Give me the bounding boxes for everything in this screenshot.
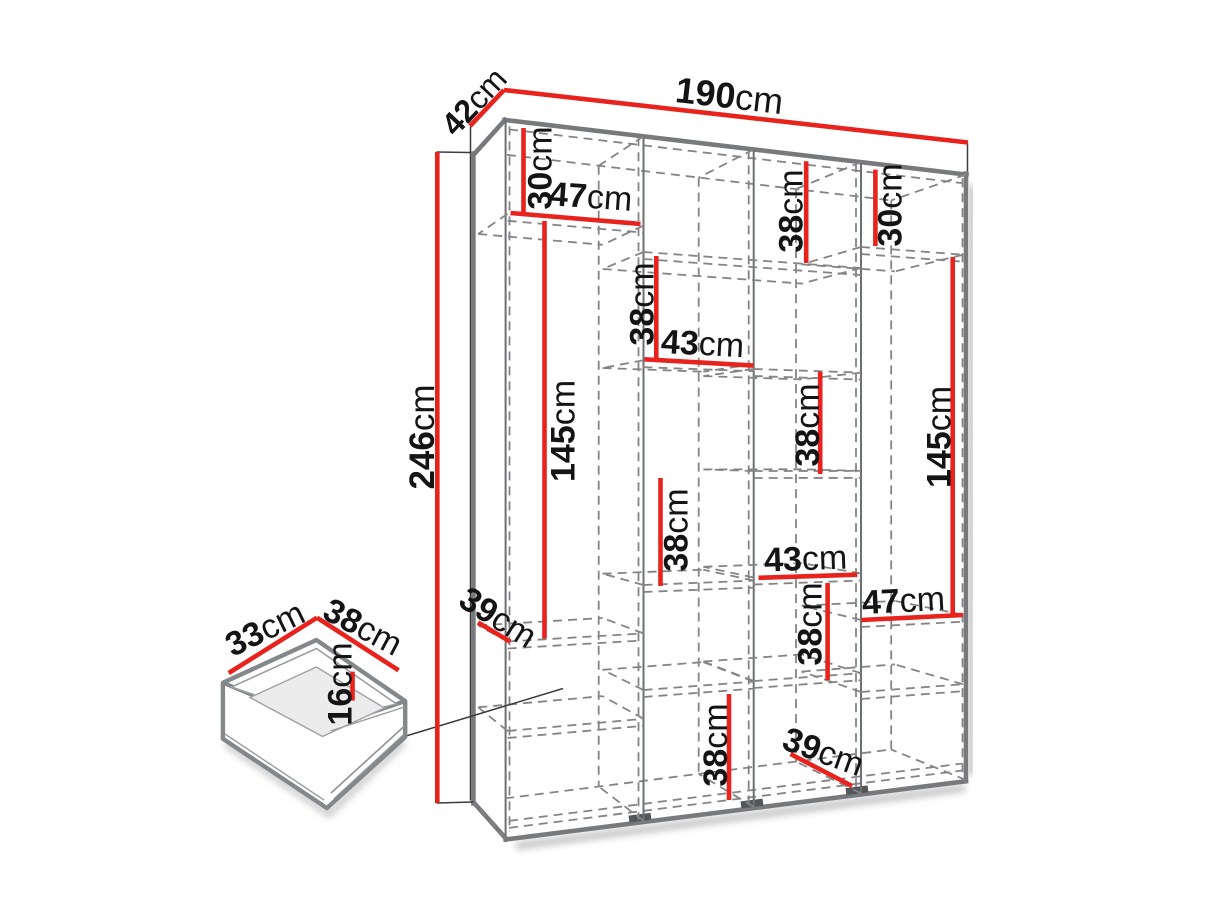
svg-text:38cm: 38cm bbox=[773, 169, 811, 252]
svg-text:145cm: 145cm bbox=[545, 380, 583, 482]
svg-text:43cm: 43cm bbox=[763, 539, 847, 580]
svg-text:145cm: 145cm bbox=[921, 386, 959, 488]
svg-text:43cm: 43cm bbox=[660, 323, 745, 365]
svg-text:30cm: 30cm bbox=[872, 163, 910, 246]
svg-text:38cm: 38cm bbox=[658, 488, 696, 571]
svg-text:47cm: 47cm bbox=[548, 175, 634, 219]
svg-text:246cm: 246cm bbox=[403, 384, 442, 489]
svg-text:38cm: 38cm bbox=[624, 262, 662, 345]
svg-text:38cm: 38cm bbox=[697, 703, 735, 786]
svg-text:16cm: 16cm bbox=[322, 642, 360, 725]
svg-text:47cm: 47cm bbox=[861, 580, 946, 622]
svg-text:38cm: 38cm bbox=[792, 582, 830, 665]
svg-text:38cm: 38cm bbox=[789, 383, 827, 466]
